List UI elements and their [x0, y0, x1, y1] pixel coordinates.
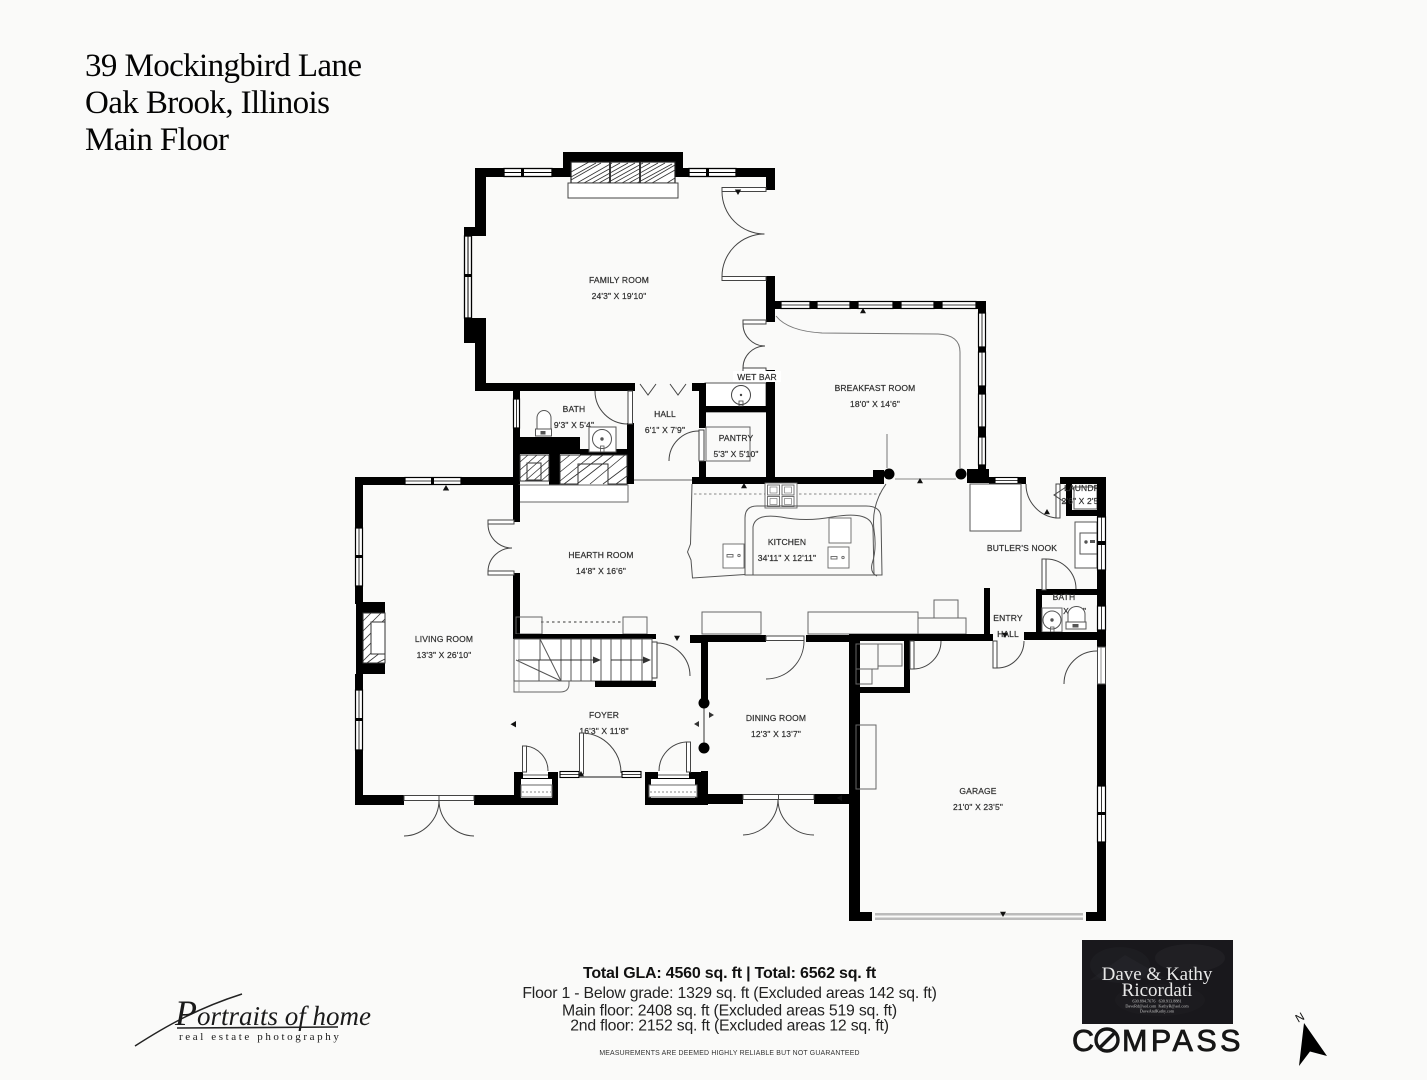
svg-text:5'3" X 5'10": 5'3" X 5'10" — [713, 449, 758, 459]
svg-text:2'6" X 2'5: 2'6" X 2'5 — [1061, 496, 1098, 506]
svg-text:FOYER: FOYER — [589, 710, 619, 720]
svg-text:39 Mockingbird Lane: 39 Mockingbird Lane — [85, 48, 361, 84]
svg-text:WET BAR: WET BAR — [737, 372, 777, 382]
svg-text:BUTLER'S NOOK: BUTLER'S NOOK — [987, 543, 1057, 553]
svg-text:16'3" X 11'8": 16'3" X 11'8" — [579, 726, 628, 736]
svg-text:2nd floor: 2152 sq. ft (Exclud: 2nd floor: 2152 sq. ft (Excluded areas 1… — [570, 1018, 889, 1035]
svg-text:ENTRY: ENTRY — [993, 613, 1023, 623]
svg-text:DaveAndKathy.com: DaveAndKathy.com — [1140, 1009, 1175, 1014]
svg-text:13'3" X 26'10": 13'3" X 26'10" — [417, 650, 472, 660]
svg-text:HEARTH ROOM: HEARTH ROOM — [568, 550, 633, 560]
svg-text:BATH: BATH — [1053, 592, 1076, 602]
svg-text:14'8" X 16'6": 14'8" X 16'6" — [576, 566, 626, 576]
svg-text:21'0" X 23'5": 21'0" X 23'5" — [953, 802, 1003, 812]
svg-text:C: C — [1072, 1024, 1098, 1058]
svg-text:Floor 1 - Below grade: 1329 sq: Floor 1 - Below grade: 1329 sq. ft (Excl… — [522, 985, 936, 1002]
svg-text:MPASS: MPASS — [1122, 1024, 1244, 1058]
svg-text:34'11" X 12'11": 34'11" X 12'11" — [758, 553, 816, 563]
svg-text:HALL: HALL — [997, 629, 1019, 639]
svg-text:GARAGE: GARAGE — [959, 786, 996, 796]
svg-text:18'0" X 14'6": 18'0" X 14'6" — [850, 399, 900, 409]
svg-text:BATH: BATH — [563, 404, 586, 414]
svg-text:24'3" X 19'10": 24'3" X 19'10" — [592, 291, 647, 301]
svg-text:Oak Brook, Illinois: Oak Brook, Illinois — [85, 85, 329, 121]
svg-text:DINING ROOM: DINING ROOM — [746, 713, 806, 723]
svg-text:LIVING ROOM: LIVING ROOM — [415, 634, 473, 644]
svg-text:12'3" X 13'7": 12'3" X 13'7" — [751, 729, 801, 739]
svg-text:MEASUREMENTS ARE DEEMED HIGHLY: MEASUREMENTS ARE DEEMED HIGHLY RELIABLE … — [599, 1050, 859, 1057]
svg-text:BREAKFAST ROOM: BREAKFAST ROOM — [835, 383, 916, 393]
svg-text:Total GLA: 4560 sq. ft | Total: Total GLA: 4560 sq. ft | Total: 6562 sq.… — [583, 965, 877, 982]
svg-text:HALL: HALL — [654, 409, 676, 419]
svg-text:KITCHEN: KITCHEN — [768, 537, 806, 547]
svg-text:PANTRY: PANTRY — [719, 433, 754, 443]
svg-text:FAMILY ROOM: FAMILY ROOM — [589, 275, 649, 285]
svg-text:Main Floor: Main Floor — [85, 122, 229, 158]
svg-text:real estate photography: real estate photography — [179, 1031, 341, 1043]
svg-text:9'3" X 5'4": 9'3" X 5'4" — [554, 420, 594, 430]
svg-text:6'1" X 7'9": 6'1" X 7'9" — [645, 425, 685, 435]
svg-text:N: N — [1294, 1011, 1307, 1026]
svg-text:LAUNDR: LAUNDR — [1064, 483, 1100, 493]
